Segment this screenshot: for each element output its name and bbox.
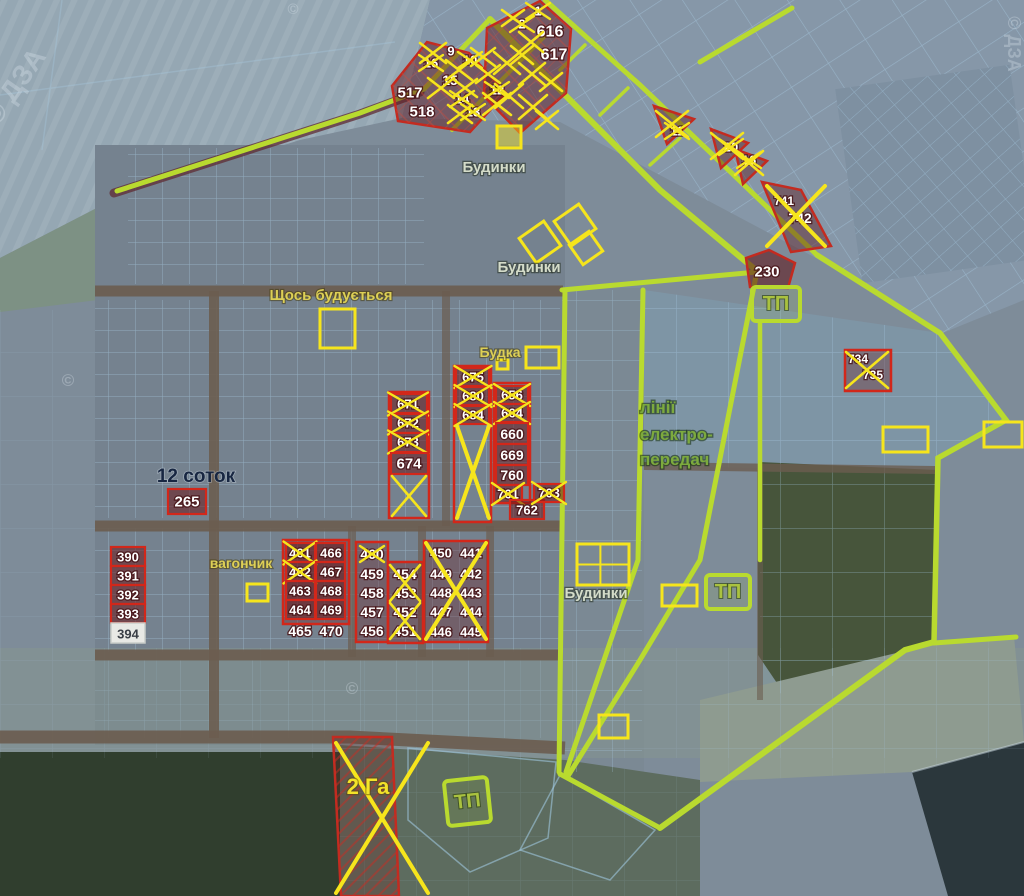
plot-675: 675 xyxy=(455,366,492,388)
plot-448: 448 xyxy=(430,586,452,601)
area-label-power-line-1: лінії xyxy=(640,398,677,417)
plot-466: 466 xyxy=(316,543,345,562)
plot-number: 760 xyxy=(500,467,524,483)
area-label-power-line-2: електро- xyxy=(640,425,713,444)
tp-label: ТП xyxy=(715,581,742,603)
plot-number: 456 xyxy=(360,623,384,639)
plot-number: 669 xyxy=(500,447,524,463)
plot-number: 466 xyxy=(320,546,342,561)
plot-456: 456 xyxy=(360,623,384,639)
area-label-shchos-buduyetsya: Щось будується xyxy=(269,287,392,304)
plot-number: 459 xyxy=(360,566,384,582)
area-label-budynky-mid: Будинки xyxy=(497,259,560,276)
plot-number: 393 xyxy=(117,607,139,622)
plot-number: 470 xyxy=(319,623,343,639)
plot-number: 230 xyxy=(754,264,779,281)
plot-394: 394 xyxy=(111,623,145,643)
plot-230: 230 xyxy=(754,264,779,281)
plot-616: 616 xyxy=(537,24,564,41)
plot-393: 393 xyxy=(111,604,145,623)
highlight-box xyxy=(497,126,521,148)
plot-656: 656 xyxy=(494,384,530,406)
cadastral-map[interactable]: 9161015517518141312126166171120167417422… xyxy=(0,0,1024,896)
watermark: © xyxy=(62,371,75,390)
plot-number: 443 xyxy=(460,586,482,601)
tp-box: ТП xyxy=(752,287,800,321)
plot-390: 390 xyxy=(111,547,145,566)
area-label-sotok-12: 12 соток xyxy=(157,466,236,487)
plot-684: 684 xyxy=(455,404,492,426)
plot-465: 465 xyxy=(288,623,312,639)
plot-number: 517 xyxy=(397,85,422,102)
plot-459: 459 xyxy=(360,566,384,582)
plot-number: 392 xyxy=(117,588,139,603)
plot-517: 517 xyxy=(397,85,422,102)
watermark: © xyxy=(287,1,298,18)
plot-463: 463 xyxy=(286,581,315,600)
plot-457: 457 xyxy=(360,604,384,620)
plot-664: 664 xyxy=(494,402,530,424)
plot-number: 467 xyxy=(320,565,342,580)
plot-number: 617 xyxy=(541,47,568,64)
area-label-budynky-top: Будинки xyxy=(462,159,525,176)
plot-469: 469 xyxy=(316,600,345,619)
plot-672: 672 xyxy=(388,412,428,435)
plot-617: 617 xyxy=(541,47,568,64)
plot-number: 518 xyxy=(409,104,434,121)
plot-458: 458 xyxy=(360,585,384,601)
plot-number: 674 xyxy=(396,456,422,473)
plot-680: 680 xyxy=(455,385,492,407)
plot-number: 465 xyxy=(288,623,312,639)
tp-label: ТП xyxy=(763,293,790,315)
plot-265: 265 xyxy=(168,489,206,514)
area-label-vagonchyk: вагончик xyxy=(210,555,274,571)
plot-391: 391 xyxy=(111,566,145,585)
plot-number: 394 xyxy=(117,627,139,642)
plot-518: 518 xyxy=(409,104,434,121)
plot-671: 671 xyxy=(388,393,428,416)
plot-660: 660 xyxy=(496,423,528,444)
plot-763: 763 xyxy=(532,482,566,504)
plot-number: 468 xyxy=(320,584,342,599)
area-label-power-line-3: передач xyxy=(640,450,709,469)
plot-number: 457 xyxy=(360,604,384,620)
plot-460: 460 xyxy=(360,546,384,562)
tp-box: ТП xyxy=(444,777,491,826)
plot-467: 467 xyxy=(316,562,345,581)
plot-number: 469 xyxy=(320,603,342,618)
plot-number: 616 xyxy=(537,24,564,41)
plot-468: 468 xyxy=(316,581,345,600)
plot-669: 669 xyxy=(496,444,528,465)
plot-number: 265 xyxy=(174,494,199,511)
plot-number: 391 xyxy=(117,569,139,584)
area-label-budynky-bottom: Будинки xyxy=(564,585,627,602)
plot-673: 673 xyxy=(388,431,428,454)
map-canvas[interactable]: 9161015517518141312126166171120167417422… xyxy=(0,0,1024,896)
tp-box: ТП xyxy=(706,575,750,609)
plot-number: 9 xyxy=(447,44,454,59)
plot-number: 762 xyxy=(516,503,538,518)
plot-760: 760 xyxy=(496,465,528,485)
plot-464: 464 xyxy=(286,600,315,619)
plot-number: 463 xyxy=(289,584,311,599)
tp-label: ТП xyxy=(453,789,482,814)
plot-number: 458 xyxy=(360,585,384,601)
watermark: © xyxy=(346,679,359,698)
plot-443: 443 xyxy=(460,586,482,601)
plot-470: 470 xyxy=(319,623,343,639)
plot-674: 674 xyxy=(391,453,428,474)
plot-number: 390 xyxy=(117,550,139,565)
watermark: © ДЗА xyxy=(1004,16,1024,72)
plot-number: 464 xyxy=(289,603,311,618)
area-label-budka: Будка xyxy=(480,344,521,360)
plot-392: 392 xyxy=(111,585,145,604)
area-label-ga-2: 2 Га xyxy=(347,774,391,799)
plot-9: 9 xyxy=(447,44,454,59)
plot-number: 448 xyxy=(430,586,452,601)
plot-number: 660 xyxy=(500,426,524,442)
